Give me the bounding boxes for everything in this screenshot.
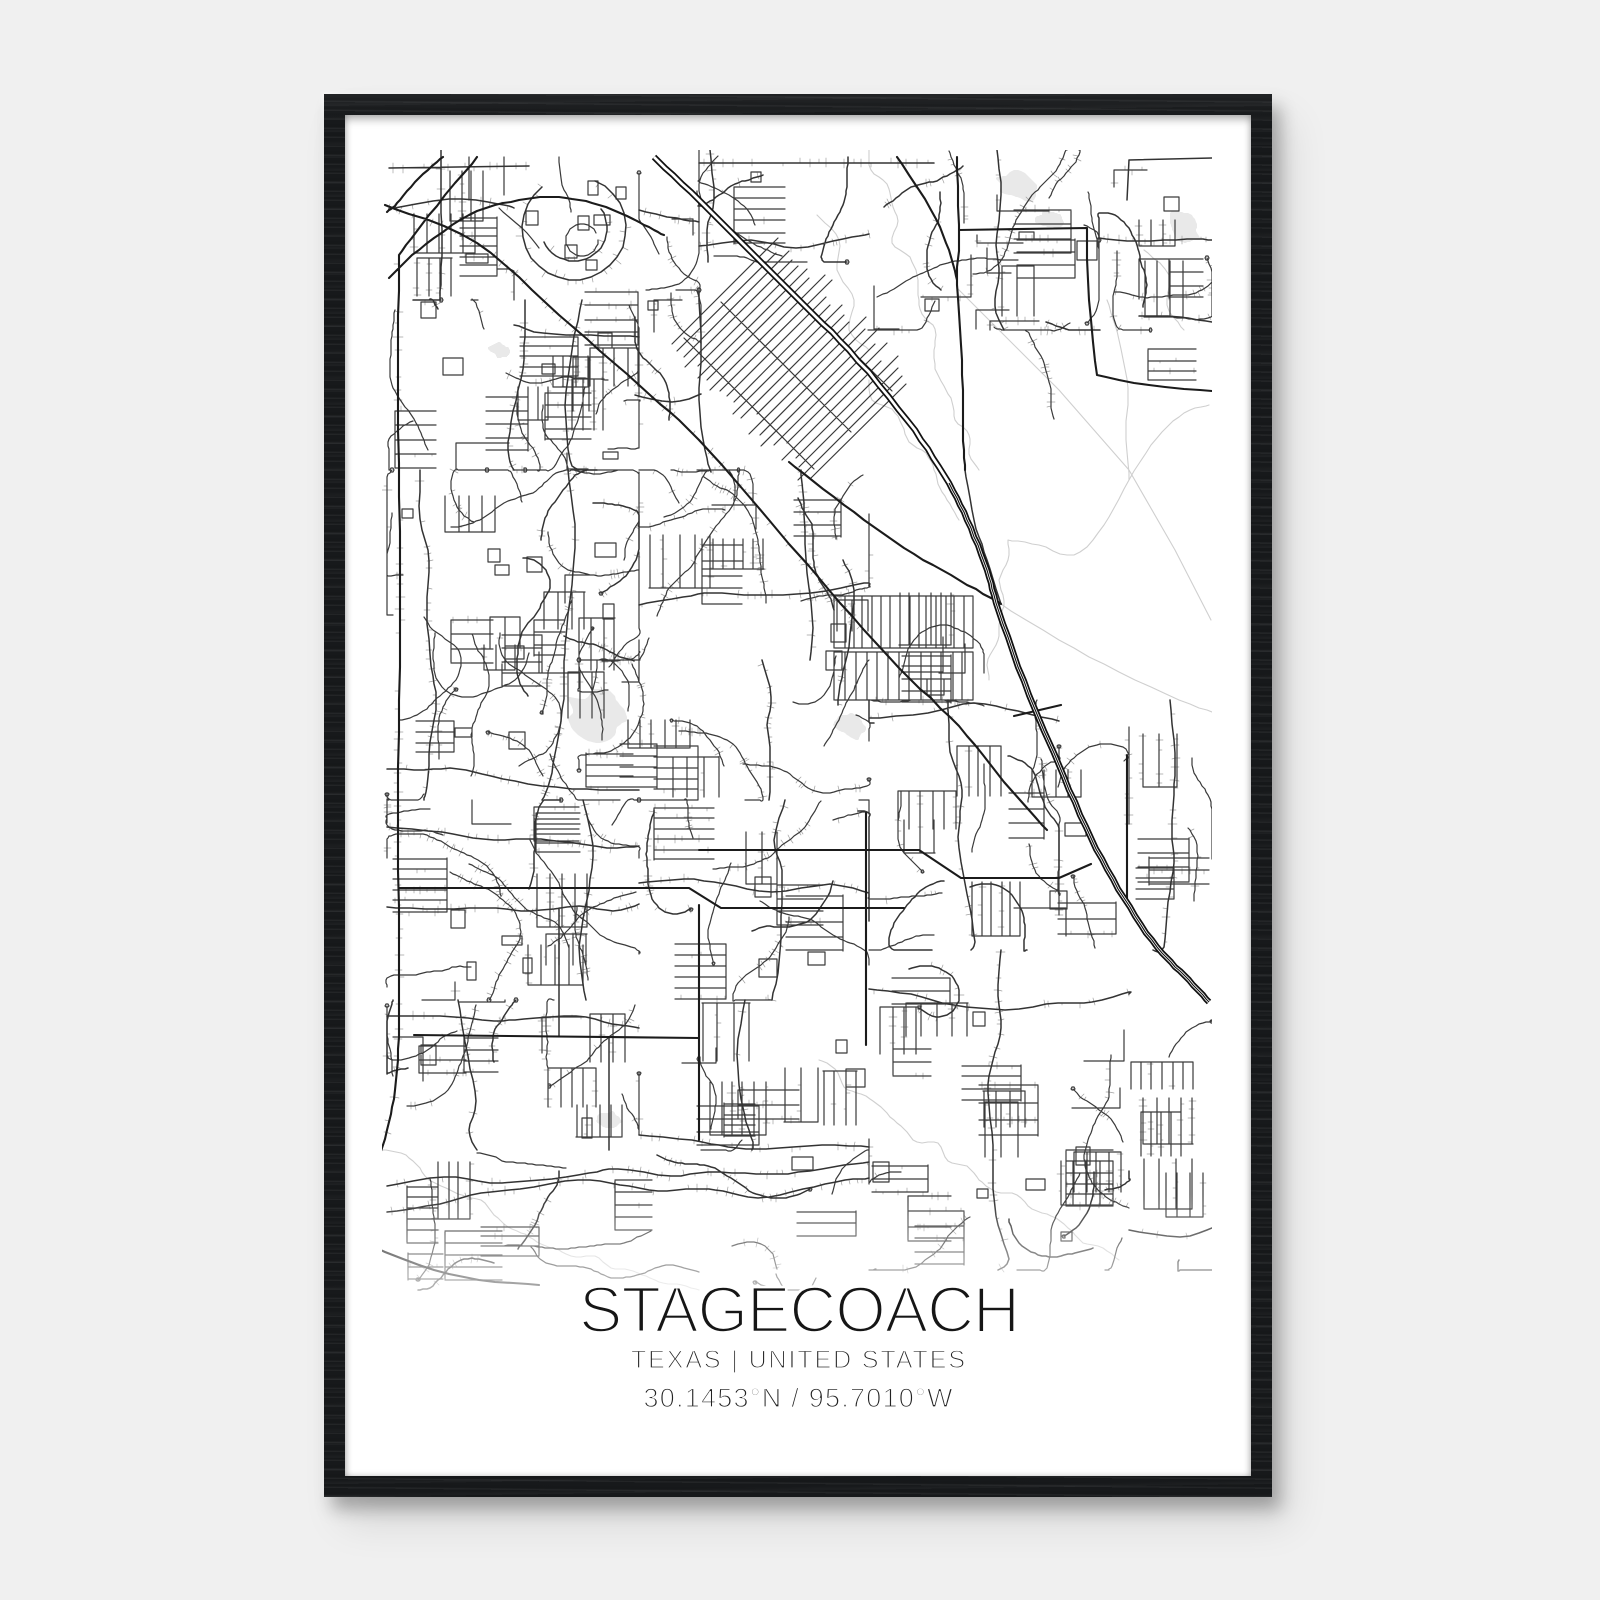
svg-text:STAGECOACH: STAGECOACH — [579, 1273, 1020, 1346]
svg-text:30.1453°N / 95.7010°W: 30.1453°N / 95.7010°W — [644, 1383, 954, 1413]
svg-text:TEXAS | UNITED STATES: TEXAS | UNITED STATES — [631, 1346, 965, 1374]
